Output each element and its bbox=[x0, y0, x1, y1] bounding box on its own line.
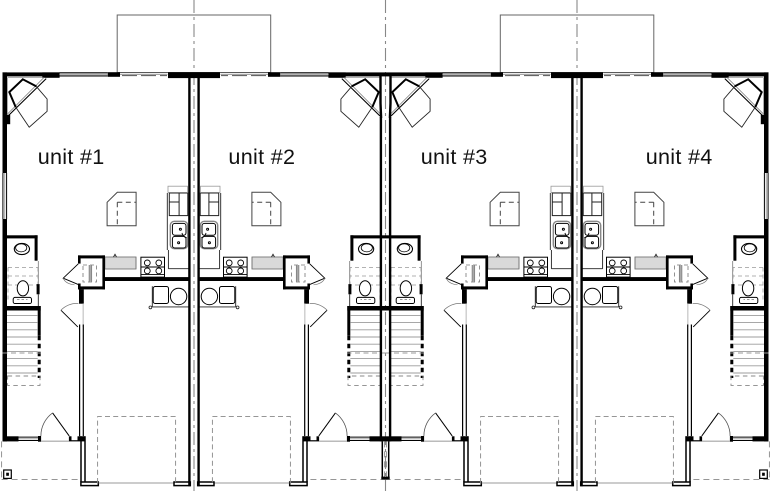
svg-text:unit #4: unit #4 bbox=[646, 144, 713, 169]
svg-text:unit #1: unit #1 bbox=[38, 144, 105, 169]
svg-text:unit #3: unit #3 bbox=[421, 144, 488, 169]
svg-text:unit #2: unit #2 bbox=[228, 144, 295, 169]
